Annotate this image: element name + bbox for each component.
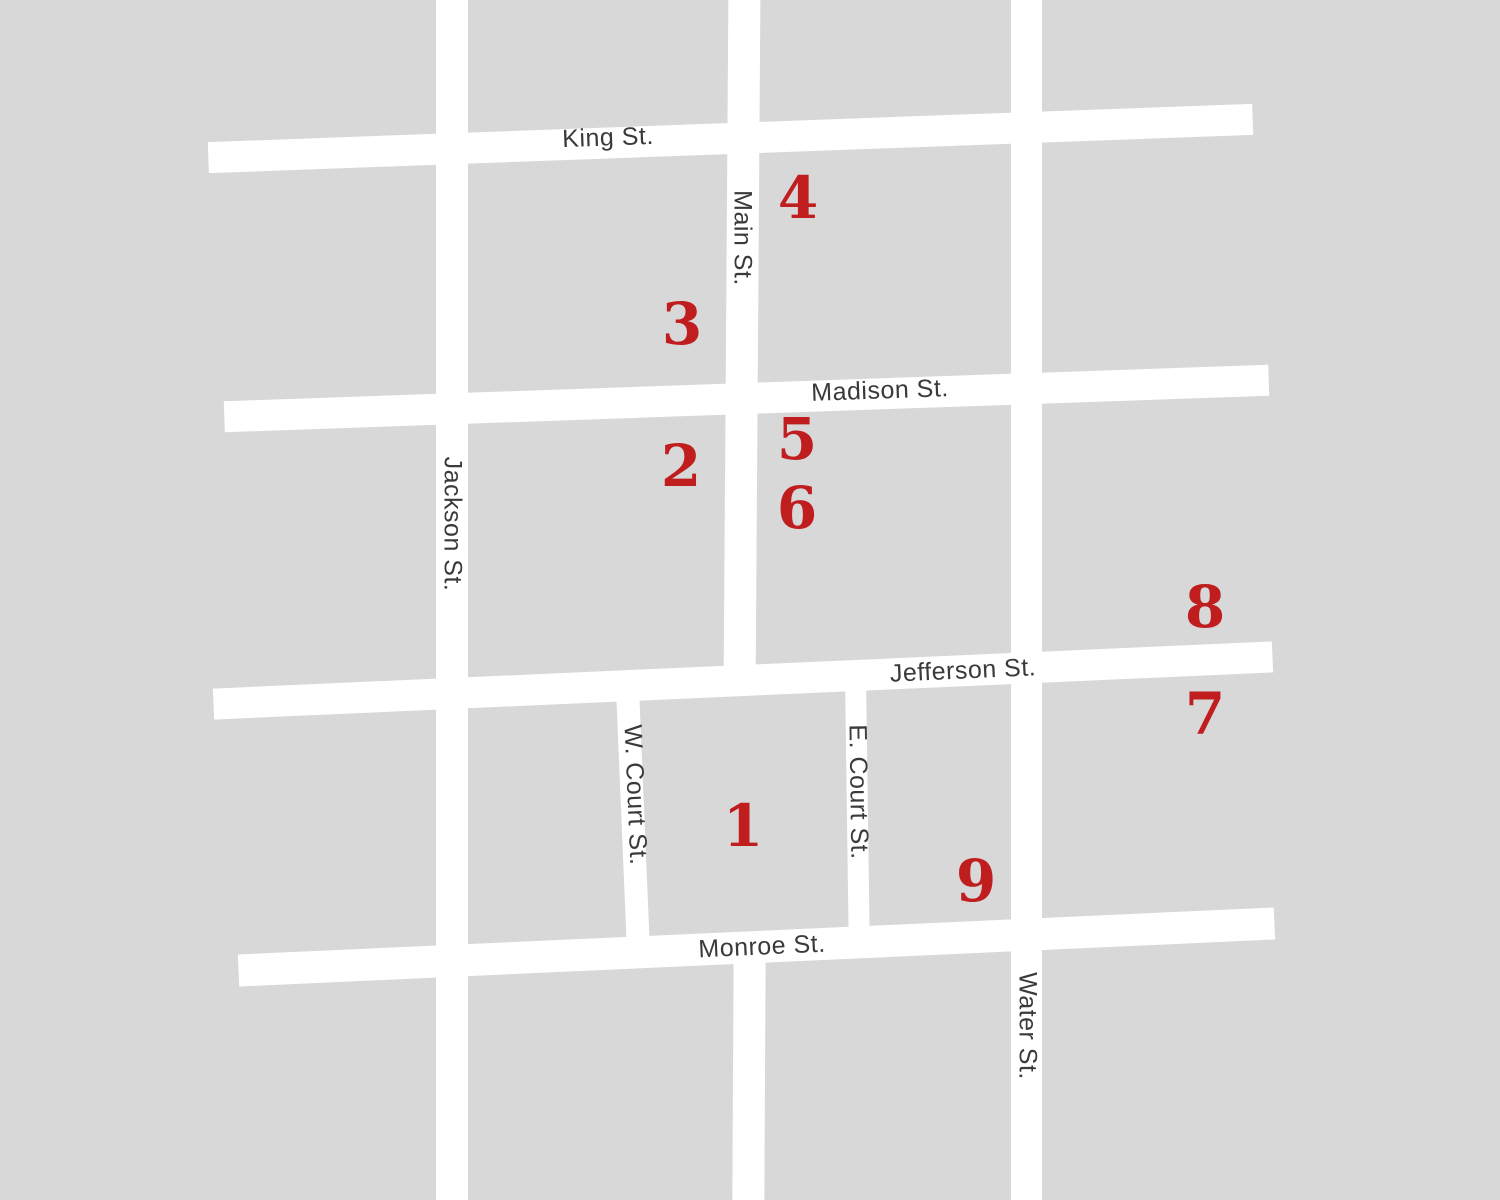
street-band-main-upper — [724, 0, 761, 690]
map-marker-2: 2 — [661, 437, 701, 495]
map-marker-4: 4 — [778, 169, 818, 227]
map-marker-8: 8 — [1185, 578, 1225, 636]
map-marker-7: 7 — [1185, 685, 1225, 743]
street-label-king: King St. — [562, 122, 655, 154]
street-label-west-court: W. Court St. — [618, 724, 653, 866]
street-label-madison: Madison St. — [811, 374, 949, 408]
street-label-main: Main St. — [728, 190, 757, 286]
street-label-water: Water St. — [1013, 972, 1042, 1080]
map-marker-5: 5 — [777, 410, 817, 468]
street-label-east-court: E. Court St. — [843, 724, 874, 860]
street-map: King St. Madison St. Jefferson St. Monro… — [0, 0, 1500, 1200]
map-marker-3: 3 — [662, 295, 702, 353]
map-marker-6: 6 — [777, 479, 817, 537]
street-band-main-lower — [732, 938, 765, 1200]
street-label-jackson: Jackson St. — [438, 457, 467, 592]
map-marker-1: 1 — [723, 797, 763, 855]
map-marker-9: 9 — [956, 852, 996, 910]
street-band-jackson — [436, 0, 468, 1200]
street-label-monroe: Monroe St. — [698, 930, 826, 965]
